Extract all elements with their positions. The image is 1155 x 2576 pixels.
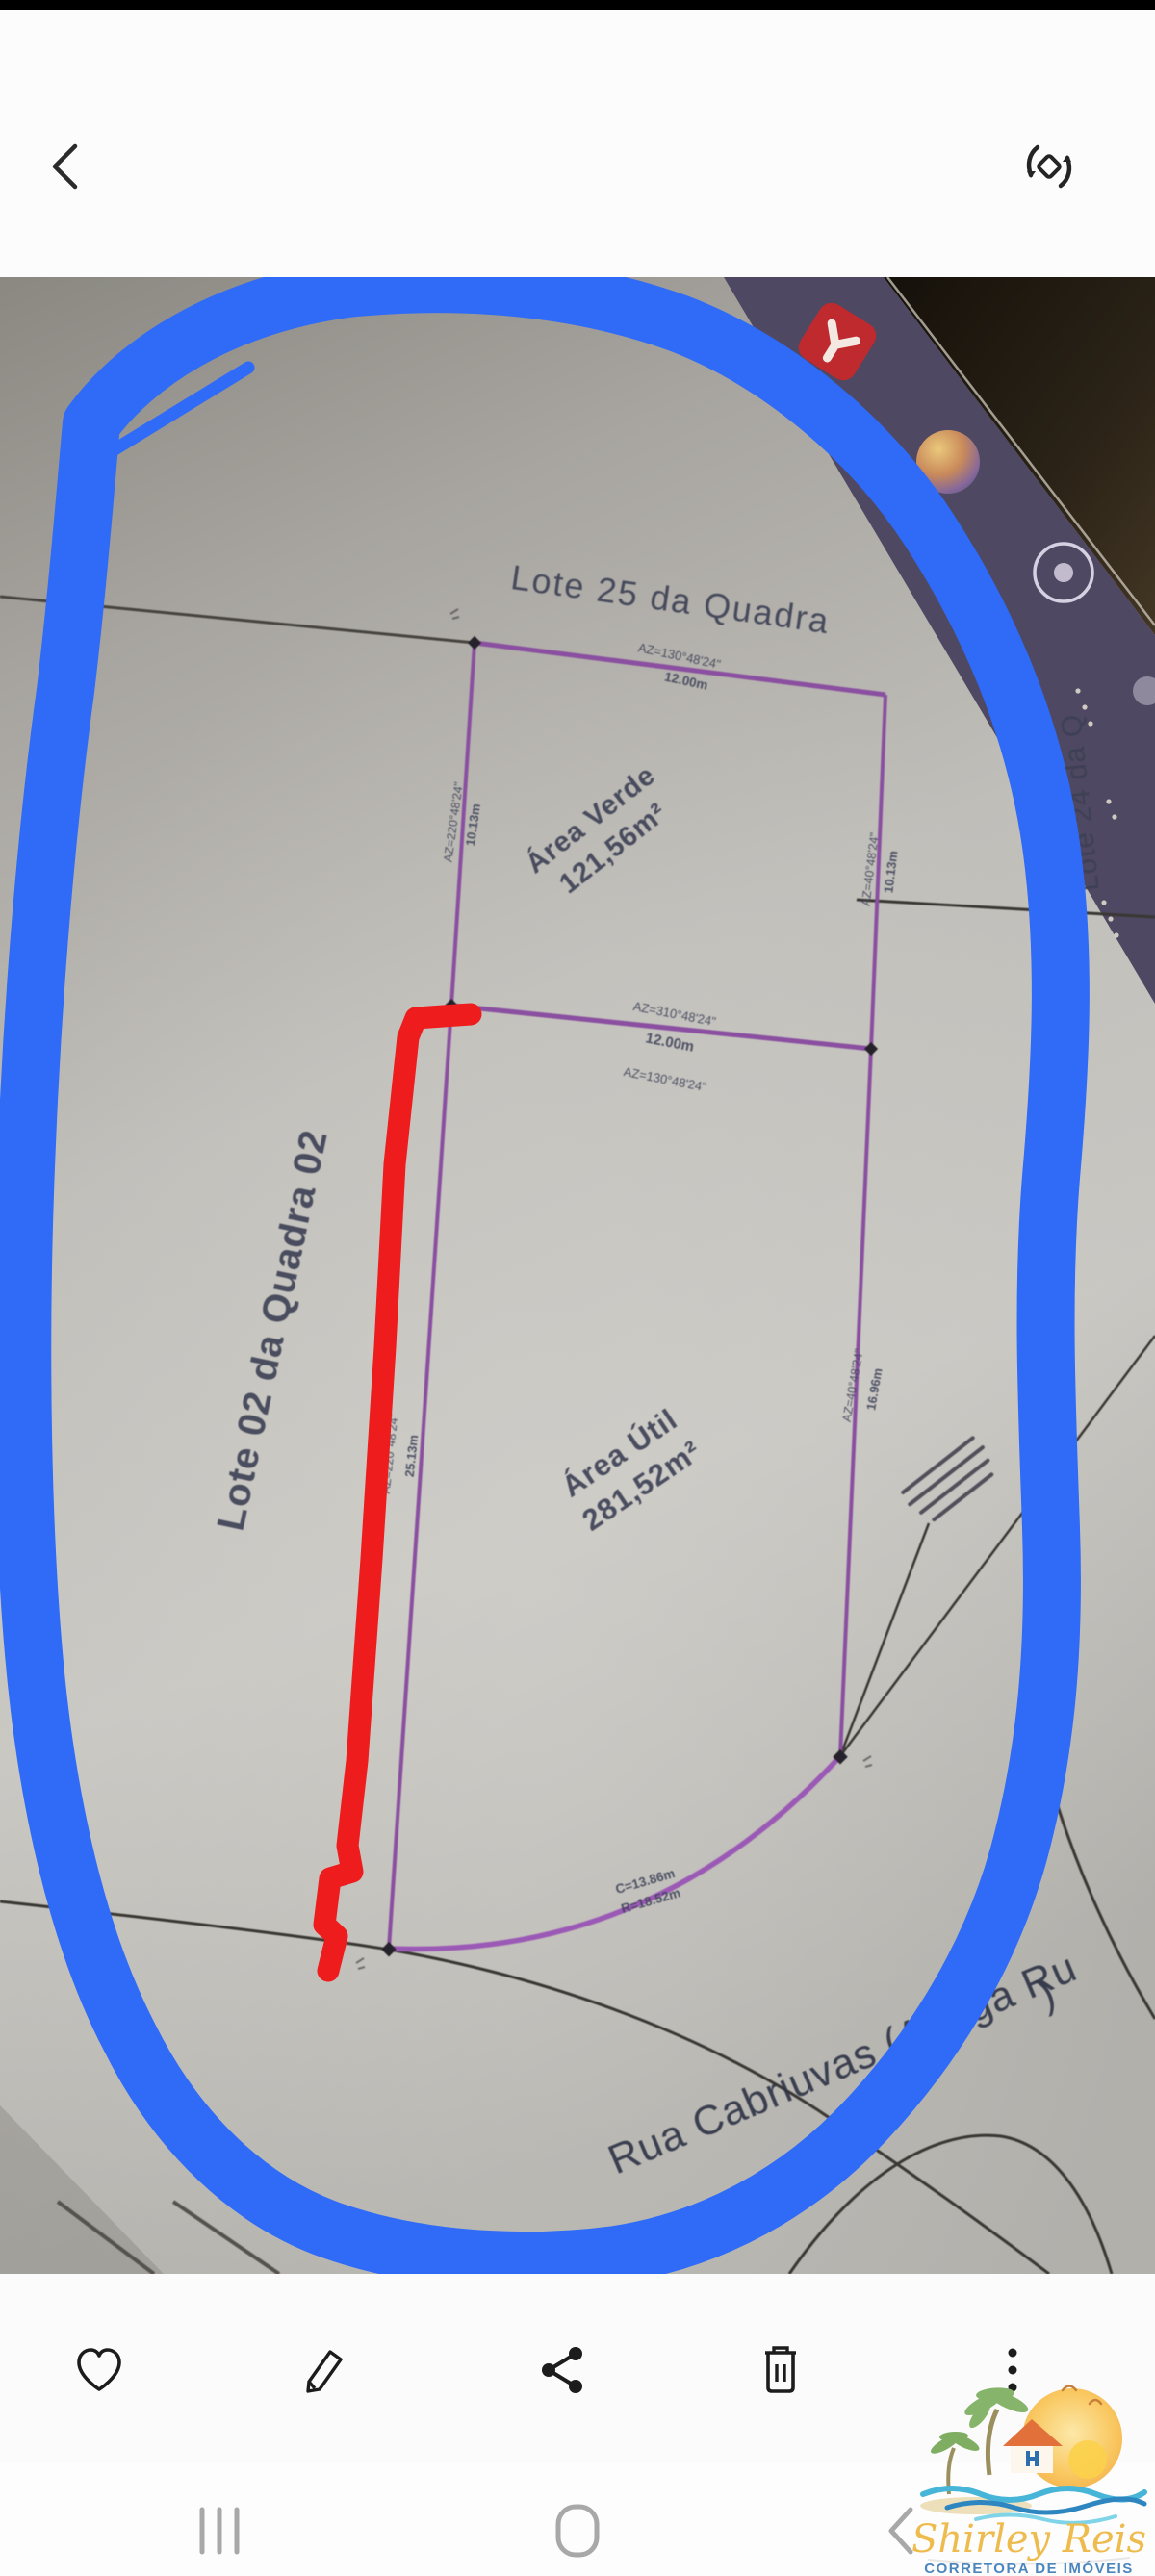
back-button[interactable] <box>40 140 94 193</box>
more-vert-icon <box>986 2343 1039 2397</box>
more-options-button[interactable] <box>986 2343 1039 2397</box>
favorite-button[interactable] <box>72 2343 126 2397</box>
recents-icon <box>192 2504 246 2558</box>
rotate-button[interactable] <box>1022 140 1076 193</box>
home-button[interactable] <box>551 2504 604 2558</box>
nav-back-button[interactable] <box>876 2504 930 2558</box>
trash-icon <box>754 2343 808 2397</box>
status-bar <box>0 0 1155 10</box>
recents-button[interactable] <box>192 2504 246 2558</box>
navigation-bar <box>0 2463 1155 2576</box>
rotate-screen-icon <box>1022 140 1076 193</box>
photo-image[interactable]: Lote 25 da Quadra Lote 02 da Quadra 02 L… <box>0 277 1155 2274</box>
delete-button[interactable] <box>754 2343 808 2397</box>
share-button[interactable] <box>536 2343 590 2397</box>
share-icon <box>536 2343 590 2397</box>
home-icon <box>551 2504 604 2558</box>
back-chevron-icon <box>40 140 94 193</box>
photo-viewer-screen: Lote 25 da Quadra Lote 02 da Quadra 02 L… <box>0 0 1155 2576</box>
edit-button[interactable] <box>297 2343 351 2397</box>
bottom-toolbar <box>0 2274 1155 2463</box>
header <box>0 10 1155 277</box>
heart-icon <box>72 2343 126 2397</box>
pencil-icon <box>297 2343 351 2397</box>
nav-back-icon <box>876 2504 930 2558</box>
